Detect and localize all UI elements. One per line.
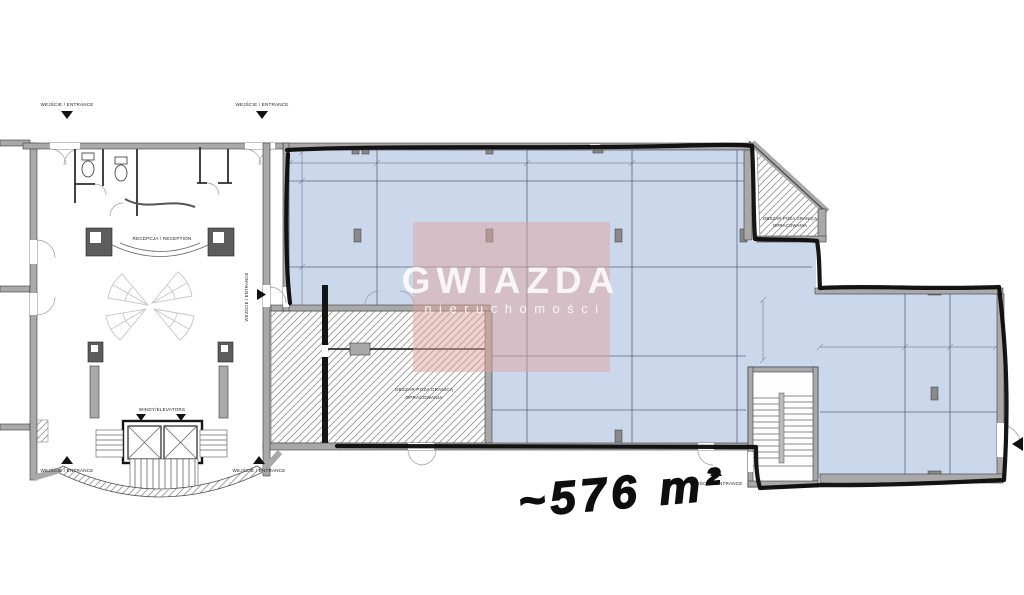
right-hall-area: [816, 293, 1001, 478]
area-annotation: ~576 m²: [516, 457, 727, 527]
lobby: RECEPCJA / RECEPTION WINDY/ELEVATORS: [0, 140, 283, 497]
out-of-scope-corner-label-line2: OPRACOWANIA: [773, 223, 807, 228]
entrance-marker-bottom-left: WEJŚCIE / ENTRANCE: [40, 456, 93, 473]
out-of-scope-corner: OBSZAR POZA GRANICĄ OPRACOWANIA: [749, 141, 827, 242]
out-of-scope-room-label-line1: OBSZAR POZA GRANICĄ: [395, 387, 454, 392]
out-of-scope-room-label-line2: OPRACOWANIA: [406, 395, 444, 400]
out-of-scope-corner-label-line1: OBSZAR POZA GRANICĄ: [763, 216, 817, 221]
entrance-label: WEJŚCIE / ENTRANCE: [40, 466, 93, 473]
right-door-arrow: [1012, 437, 1023, 451]
entrance-marker-top-mid: WEJŚCIE / ENTRANCE: [235, 100, 288, 119]
entrance-label: WEJŚCIE / ENTRANCE: [40, 100, 93, 107]
elevator-core: WINDY/ELEVATORS: [123, 407, 202, 463]
reception-desk: RECEPCJA / RECEPTION: [86, 228, 234, 257]
reception-label: RECEPCJA / RECEPTION: [133, 236, 192, 241]
entrance-label: WEJŚCIE / ENTRANCE: [232, 466, 285, 473]
elevators-label: WINDY/ELEVATORS: [139, 407, 185, 412]
wc-rooms: [75, 147, 232, 216]
fan-decoration: [104, 271, 196, 342]
entrance-label: WEJŚCIE / ENTRANCE: [235, 100, 288, 107]
watermark-tagline: nieruchomości: [424, 301, 605, 316]
entrance-label: WEJŚCIE / ENTRANCE: [244, 272, 249, 321]
entrance-marker-top-left: WEJŚCIE / ENTRANCE: [40, 100, 93, 119]
floor-plan-page: OBSZAR POZA GRANICĄ OPRACOWANIA OBSZAR P…: [0, 0, 1024, 595]
floor-plan-svg: OBSZAR POZA GRANICĄ OPRACOWANIA OBSZAR P…: [0, 0, 1024, 595]
watermark-brand: GWIAZDA: [402, 260, 621, 301]
watermark: GWIAZDA nieruchomości: [402, 222, 621, 372]
